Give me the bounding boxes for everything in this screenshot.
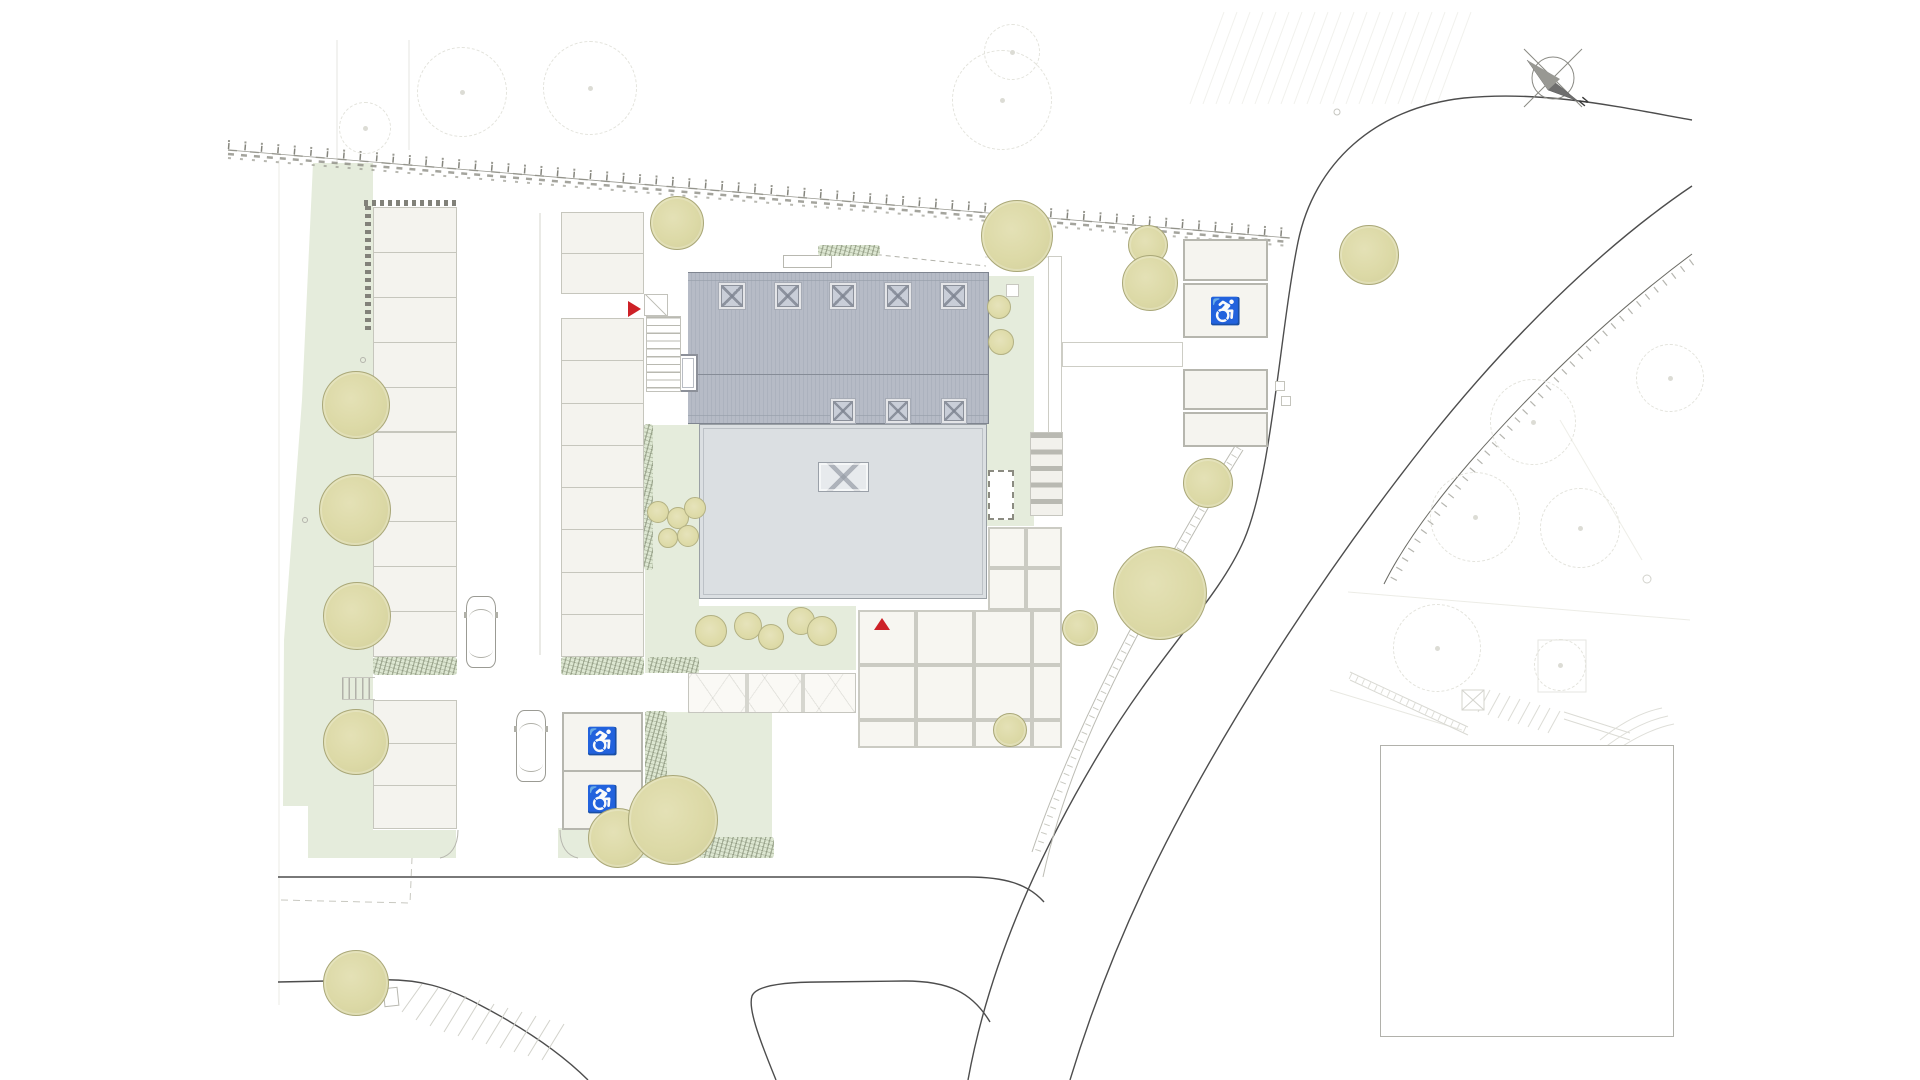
east-road-slope-ticks (1392, 262, 1692, 582)
west-external-stair (646, 316, 681, 392)
east-walkway-horizontal (1062, 342, 1183, 367)
main-building-lower-roof (699, 424, 987, 599)
north-compass: N (1524, 49, 1591, 109)
east-walkway-vertical (1048, 256, 1062, 440)
planting-strip-se-hedge (700, 837, 774, 858)
legend-box (1380, 745, 1674, 1037)
main-building-upper-roof (687, 272, 989, 424)
north-entrance-canopy (783, 255, 832, 268)
planting-strip-left-col (373, 657, 457, 675)
lawn-south-strip (688, 606, 856, 670)
faint-field-hatch (1190, 12, 1471, 104)
roof-eave-line-top (688, 280, 988, 281)
hedge-dashes-top (364, 200, 458, 206)
planting-strip-right-col (561, 657, 644, 675)
chimney (678, 354, 698, 392)
south-branch-east-edge (751, 981, 990, 1080)
east-road-se-edge (1384, 254, 1692, 584)
site-plan-canvas: N ♿♿♿ (0, 0, 1920, 1080)
paver-band (688, 673, 856, 713)
hedgerow-north (228, 141, 1290, 246)
planting-strip-garden-bottom (648, 657, 699, 673)
bollard-1 (1275, 381, 1285, 391)
planting-strip-south-hedge (645, 711, 667, 857)
planting-strip-garden-left (644, 424, 653, 570)
east-terrace-steps (1030, 432, 1063, 516)
fork-paving-hatch (402, 984, 564, 1060)
footpath-along-road (1032, 446, 1243, 877)
entrance-curbs (440, 830, 578, 858)
west-stair-landing (644, 294, 668, 316)
bollard-2 (1281, 396, 1291, 406)
faint-neighbour-details (1330, 109, 1690, 756)
pedestrian-crossing (342, 677, 375, 700)
north-planting-strip (818, 245, 880, 256)
paver-joint (801, 674, 805, 712)
fork-small-structure (383, 987, 399, 1006)
hedge-dashes-left (365, 206, 371, 332)
compass-north-label: N (1577, 95, 1591, 109)
utility-square (1006, 284, 1019, 297)
dashed-boundary-sw (281, 858, 412, 903)
hedge-enclosure (988, 470, 1014, 520)
lawn-entry-corner (558, 828, 646, 858)
roof-ridge-line (688, 374, 988, 375)
roof-eave-line-bottom (688, 415, 988, 416)
paver-joint (745, 674, 749, 712)
south-street-north-edge (278, 877, 1044, 902)
